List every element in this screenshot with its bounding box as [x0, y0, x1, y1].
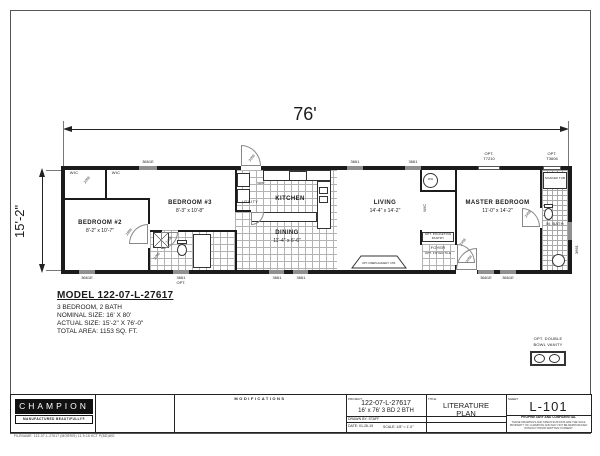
dim-arrow-up: [39, 168, 45, 177]
window: [79, 270, 95, 274]
door-size-label: 2068: [83, 176, 91, 185]
wall: [540, 228, 542, 270]
master-bedroom-label: MASTER BEDROOM: [460, 200, 535, 207]
bedroom2-label: BEDROOM #2: [65, 220, 135, 227]
window: [173, 270, 189, 274]
window-code: 3661: [401, 160, 425, 164]
wic-label: WIC: [109, 171, 123, 176]
legal-title: PROPRIETARY AND CONFIDENTIAL: [506, 416, 591, 420]
soaker-tub-label: SOAKER TUB: [543, 177, 567, 181]
title-block: CHAMPION MANUFACTURED BEAUTIFULLY® MODIF…: [10, 394, 592, 433]
dim-width-line: [68, 129, 565, 130]
dim-extension: [63, 121, 64, 166]
window-code: 3661E: [474, 276, 498, 280]
window-code: T7210: [477, 157, 501, 161]
wic-label: WIC: [67, 171, 81, 176]
date: DATE: 01-26-19: [348, 424, 373, 428]
dining-label: DINING: [252, 230, 322, 237]
optional-window: [543, 166, 561, 170]
master-bath-label: M. BATH: [541, 222, 569, 227]
wall: [540, 170, 542, 208]
wall: [235, 210, 251, 212]
opt-foyer-tile-label: OPT. FOYER TILE: [422, 252, 454, 256]
door-opening: [456, 270, 477, 274]
model-line: NOMINAL SIZE: 16' X 80': [57, 312, 267, 320]
window-code: 3661: [265, 276, 289, 280]
wall: [455, 170, 457, 245]
dim-arrow-down: [39, 264, 45, 273]
bath2-shower-tub: [193, 234, 211, 268]
wall: [235, 230, 237, 270]
model-spec-block: MODEL 122-07-L-27617 3 BEDROOM, 2 BATH N…: [57, 290, 267, 336]
kitchen-label: KITCHEN: [255, 196, 325, 203]
floor-plan: WH WIC OPT. POCKETING PANTRY FOYER OPT. …: [61, 166, 572, 274]
wall: [105, 170, 107, 198]
door-size-label: 2468: [459, 238, 467, 247]
window-code: 3661E: [496, 276, 520, 280]
bedroom3-size: 8'-3" x 10'-8": [153, 208, 227, 214]
window-code: 3661: [289, 276, 313, 280]
dim-extension: [46, 270, 62, 271]
dim-extension: [46, 170, 62, 171]
window: [347, 166, 363, 170]
toilet: [177, 244, 187, 256]
model-title: MODEL 122-07-L-27617: [57, 290, 267, 301]
window: [139, 166, 157, 170]
window: [500, 270, 516, 274]
drawn-by: DRAWN BY: STAFF: [348, 417, 379, 421]
dim-width-label: 76': [270, 104, 340, 126]
living-size: 14'-4" x 14'-2": [345, 208, 425, 214]
scale: SCALE: 1/8" = 1'-0": [383, 425, 414, 429]
dim-arrow-left: [63, 126, 72, 132]
wall: [422, 190, 455, 192]
dining-size: 11'-4" x 6'-6": [252, 238, 322, 244]
sheet-number: L-101: [506, 399, 591, 415]
model-line: 3 BEDROOM, 2 BATH: [57, 304, 267, 312]
model-line: ACTUAL SIZE: 15'-2" X 76'-0": [57, 320, 267, 328]
window-code: 3661E: [136, 160, 160, 164]
window: [293, 270, 308, 274]
project-description: 16' x 76' 3 BD 2 BTH: [346, 408, 426, 415]
pantry-label-2: PANTRY: [422, 237, 454, 240]
vanity-bowl: [534, 354, 545, 363]
door-opening: [241, 166, 261, 170]
title-label: TITLE:: [428, 397, 437, 401]
model-line: TOTAL AREA: 1153 SQ. FT.: [57, 328, 267, 336]
dim-height-line: [42, 174, 43, 268]
window-code: 3661E: [75, 276, 99, 280]
modifications-header: MODIFICATIONS: [174, 397, 346, 402]
range: [289, 171, 307, 181]
master-bath-sink: [552, 254, 565, 267]
window: [405, 166, 421, 170]
wall: [148, 248, 150, 270]
drawing-sheet: 76' 15'-2": [0, 0, 600, 456]
toilet: [544, 208, 553, 220]
washer: [237, 173, 250, 187]
water-heater-label: WH: [423, 178, 438, 182]
wall: [65, 198, 150, 200]
window-code: T3606: [540, 157, 564, 161]
champion-tagline: MANUFACTURED BEAUTIFULLY®: [15, 415, 93, 424]
dim-height-label: 15'-2": [12, 188, 28, 254]
wall: [178, 230, 237, 232]
wall: [148, 200, 150, 224]
window: [478, 270, 494, 274]
window: [568, 222, 572, 240]
champion-logo: CHAMPION: [15, 399, 93, 414]
window-code: OPT.: [169, 281, 193, 285]
opt-fireplace-label: OPT. FIREPLACE/ENT. CTR.: [361, 262, 397, 265]
vanity-note-line2: BOWL VANITY: [524, 343, 572, 348]
dim-extension: [568, 121, 569, 166]
title-block-divider: [95, 395, 96, 432]
wdp-label: WDP: [251, 182, 271, 186]
legal-text: WITHOUT PRIOR WRITTEN CONSENT: [506, 427, 591, 430]
bedroom3-label: BEDROOM #3: [153, 200, 227, 207]
vanity-bowl: [549, 354, 560, 363]
living-label: LIVING: [345, 200, 425, 207]
sheet-title-line2: PLAN: [426, 409, 506, 418]
filename-note: FILENAME: 122-07-L-27617 (MORRIS) 11-9-1…: [14, 434, 115, 438]
window-code: 3661: [575, 238, 583, 262]
wall: [420, 170, 422, 192]
window: [269, 270, 284, 274]
sink-bowl: [319, 187, 328, 194]
window-code: 3661: [343, 160, 367, 164]
optional-window: [478, 166, 500, 170]
